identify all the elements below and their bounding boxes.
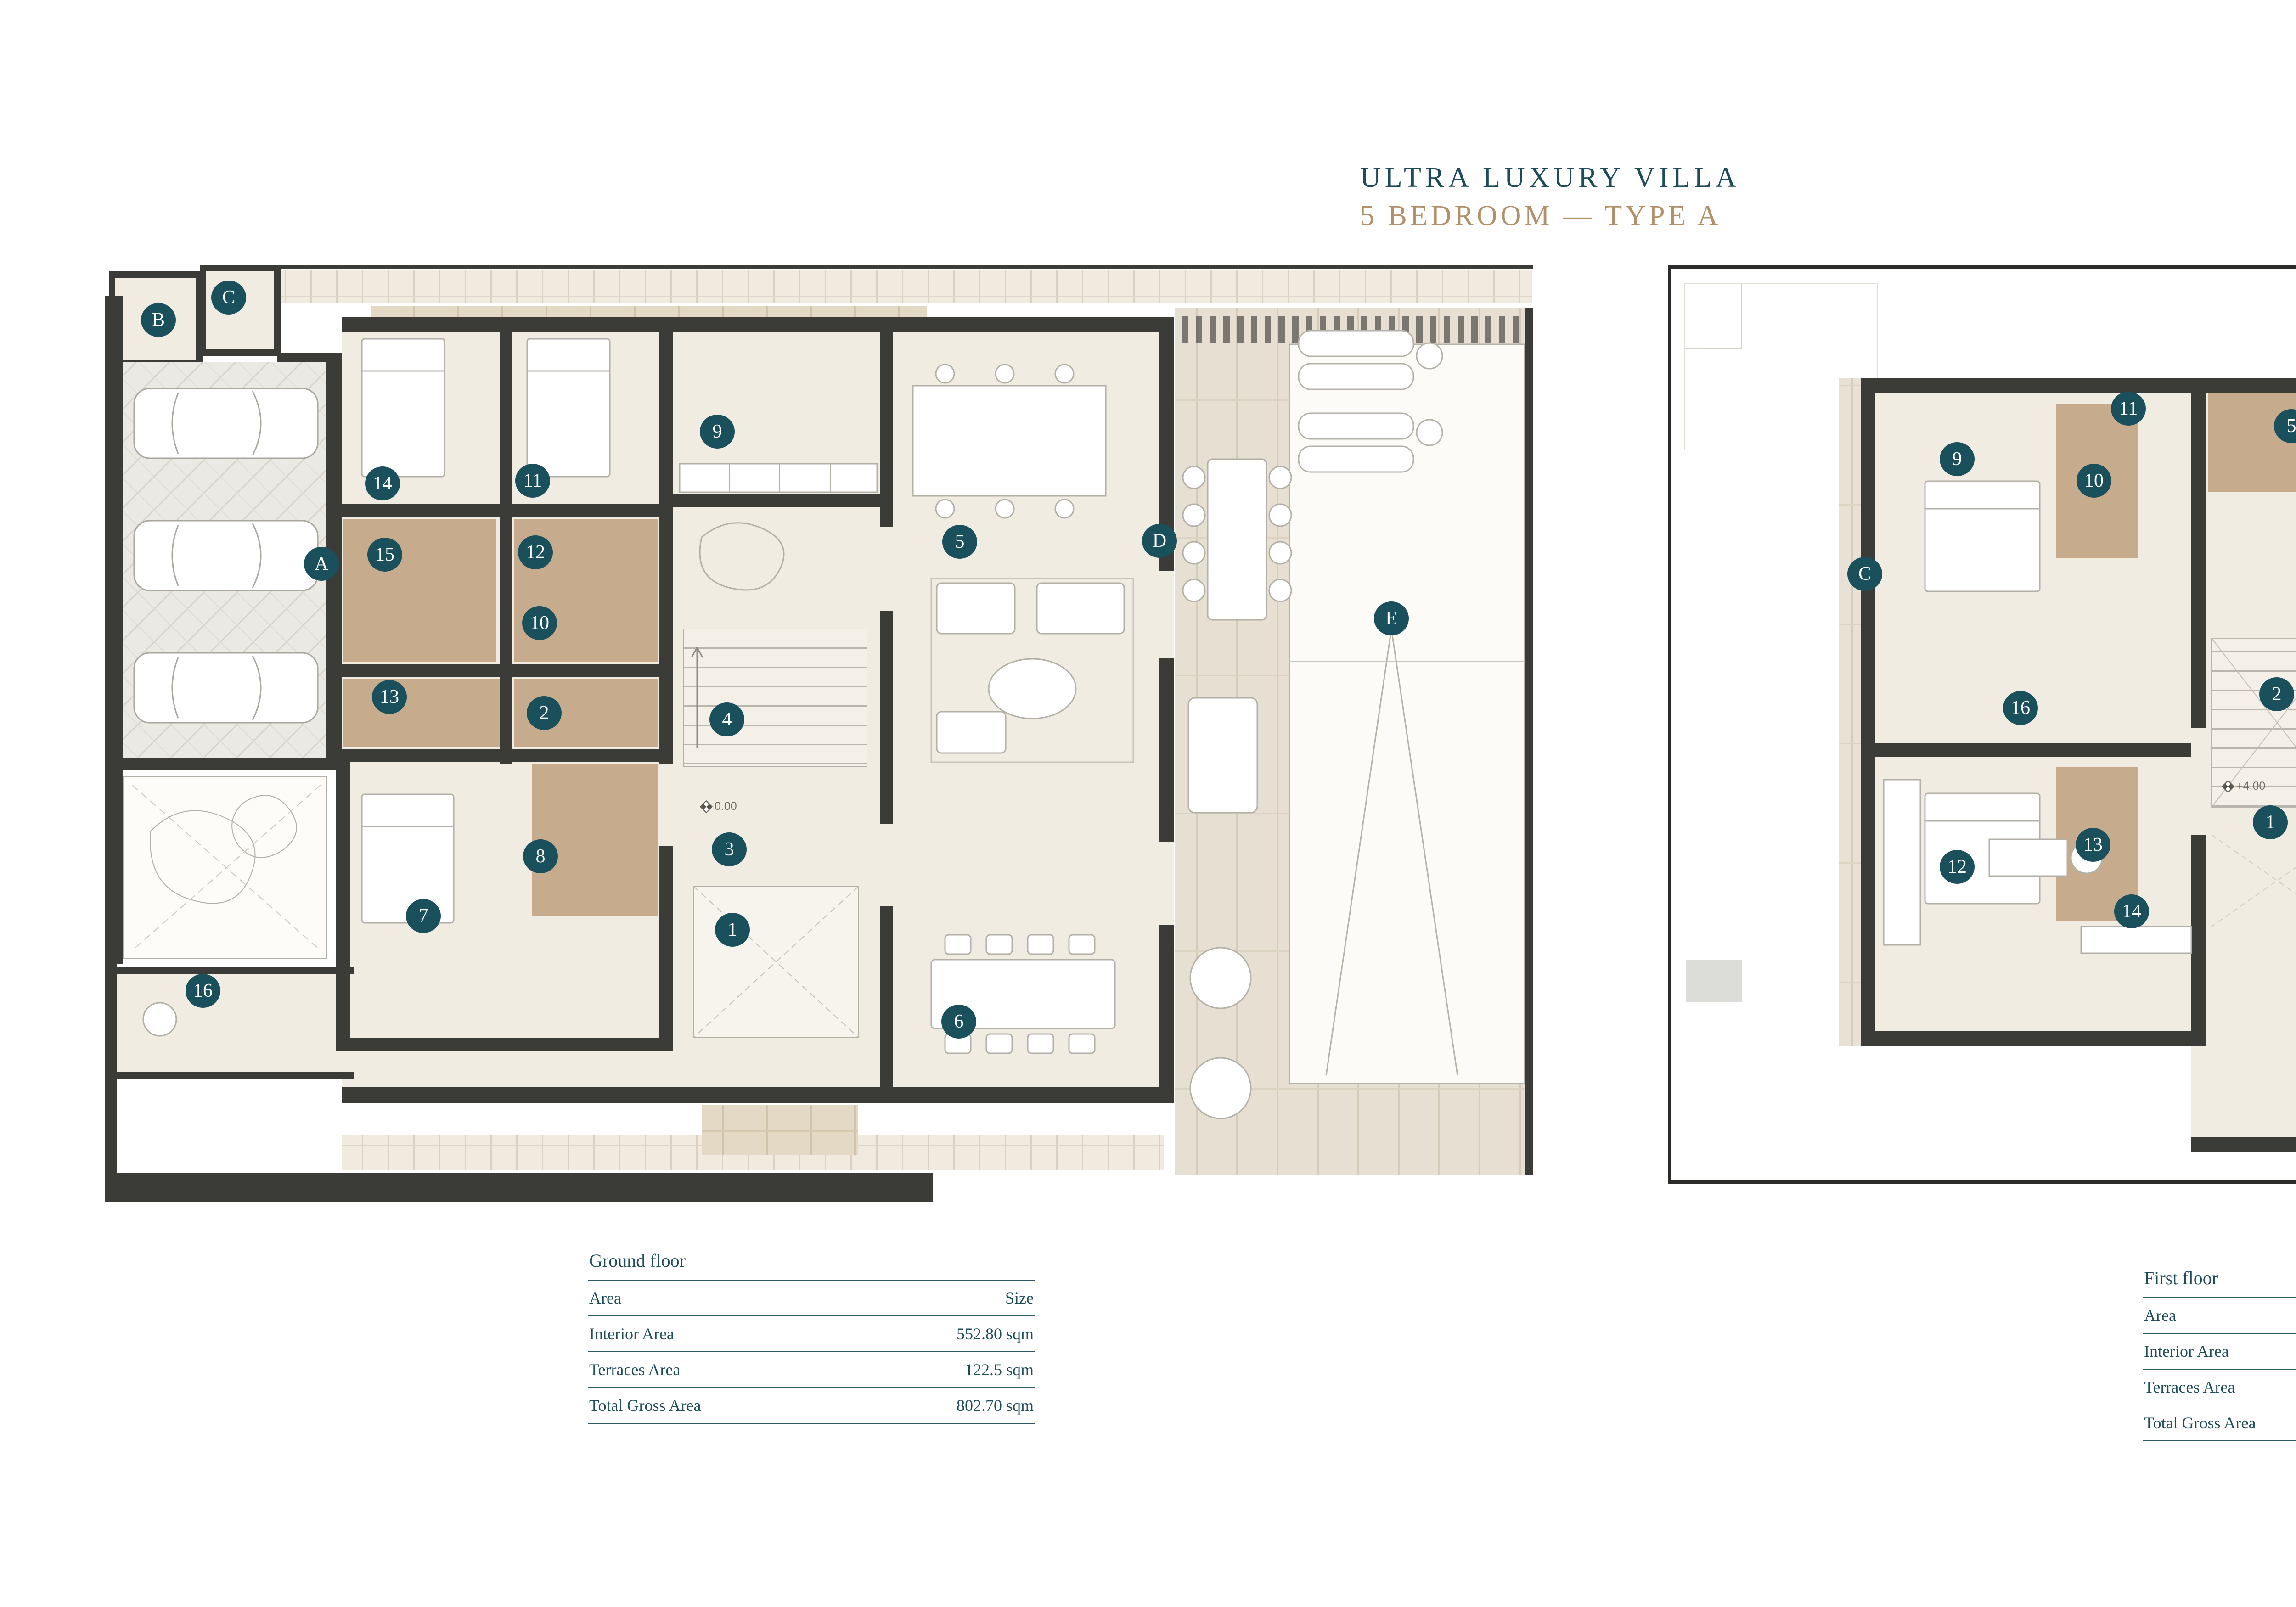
plan-marker-6: 6 [941, 1005, 976, 1039]
area-value: 552.80 sqm [957, 1324, 1034, 1343]
first-plan-drawing [1668, 265, 2296, 1184]
plan-marker-8: 8 [523, 839, 558, 873]
pool [1289, 331, 1525, 1084]
level-symbol-icon [700, 800, 713, 813]
plan-marker-15: 15 [367, 538, 402, 572]
table-rows: AreaSizeInterior Area552.80 sqmTerraces … [2143, 1297, 2296, 1441]
area-label: Total Gross Area [589, 1396, 701, 1415]
plan-marker-10: 10 [2077, 464, 2111, 498]
first-level-annotation: +4.00 [2223, 780, 2265, 793]
plan-marker-5: 5 [942, 525, 977, 559]
stairs [683, 629, 867, 767]
plan-marker-A: A [304, 547, 339, 581]
garage-cars [134, 388, 318, 723]
plan-marker-7: 7 [406, 899, 441, 933]
ground-level-annotation: 0.00 [702, 800, 737, 813]
ground-level-value: 0.00 [715, 800, 737, 813]
plan-marker-11: 11 [515, 464, 550, 498]
table-row: Terraces Area103.88 sqm [2143, 1370, 2296, 1405]
plan-marker-10: 10 [522, 606, 557, 640]
table-row: Interior Area552.80 sqm [2143, 1334, 2296, 1370]
table-row: Total Gross Area802.70 sqm [2143, 1405, 2296, 1441]
first-floor-table: First floor AreaSizeInterior Area552.80 … [2143, 1267, 2296, 1441]
column-header-size: Size [1005, 1288, 1034, 1308]
ground-floor-table: Ground floor AreaSizeInterior Area552.80… [588, 1250, 1035, 1424]
villa-subtitle: 5 BEDROOM — TYPE A [1360, 200, 1740, 232]
plan-marker-B: B [141, 303, 176, 337]
plan-marker-D: D [1142, 524, 1177, 558]
plan-marker-16: 16 [186, 974, 220, 1008]
plan-marker-C: C [1847, 557, 1882, 591]
plan-marker-3: 3 [712, 832, 747, 866]
plan-marker-11: 11 [2111, 392, 2146, 426]
plan-marker-4: 4 [709, 702, 744, 736]
plan-marker-9: 9 [1940, 442, 1975, 476]
level-symbol-icon [2222, 780, 2234, 792]
ground-floor-plan: 0.00 BC1411A15121013295D43187166E [105, 262, 1534, 1204]
table-header-row: AreaSize [2143, 1297, 2296, 1334]
page: ULTRA LUXURY VILLA 5 BEDROOM — TYPE A [0, 0, 2296, 1607]
area-label: Terraces Area [2144, 1377, 2235, 1397]
table-row: Interior Area552.80 sqm [588, 1316, 1035, 1352]
villa-title: ULTRA LUXURY VILLA [1360, 162, 1740, 194]
plan-marker-12: 12 [1940, 850, 1975, 884]
plan-marker-1: 1 [2253, 805, 2288, 839]
plan-marker-13: 13 [2076, 828, 2110, 862]
courtyard [117, 777, 354, 1079]
first-floor-plan: +4.00 11591043CA162151213141876B [1668, 265, 2296, 1184]
plan-marker-1: 1 [715, 913, 750, 947]
plan-marker-13: 13 [372, 680, 407, 714]
first-level-value: +4.00 [2236, 780, 2265, 793]
plan-marker-14: 14 [365, 466, 400, 500]
plan-marker-14: 14 [2114, 894, 2149, 928]
area-value: 122.5 sqm [965, 1360, 1034, 1379]
plan-marker-C: C [211, 281, 246, 315]
plan-marker-12: 12 [518, 535, 553, 569]
column-header-area: Area [589, 1288, 621, 1308]
table-rows: AreaSizeInterior Area552.80 sqmTerraces … [588, 1280, 1035, 1424]
plan-marker-2: 2 [527, 696, 562, 730]
plan-marker-16: 16 [2003, 691, 2038, 725]
area-label: Terraces Area [589, 1360, 680, 1379]
page-title: ULTRA LUXURY VILLA 5 BEDROOM — TYPE A [1360, 162, 1740, 232]
plan-marker-E: E [1374, 601, 1409, 635]
plan-marker-2: 2 [2259, 677, 2294, 711]
plan-marker-9: 9 [700, 415, 735, 449]
area-value: 802.70 sqm [957, 1396, 1034, 1415]
area-label: Total Gross Area [2144, 1413, 2256, 1433]
table-row: Total Gross Area802.70 sqm [588, 1388, 1035, 1424]
area-label: Interior Area [589, 1324, 674, 1343]
column-header-area: Area [2144, 1306, 2176, 1325]
table-row: Terraces Area122.5 sqm [588, 1352, 1035, 1388]
table-title: First floor [2143, 1267, 2296, 1297]
table-header-row: AreaSize [588, 1280, 1035, 1316]
area-label: Interior Area [2144, 1342, 2229, 1361]
ground-plan-drawing [105, 262, 1534, 1204]
table-title: Ground floor [588, 1250, 1035, 1280]
